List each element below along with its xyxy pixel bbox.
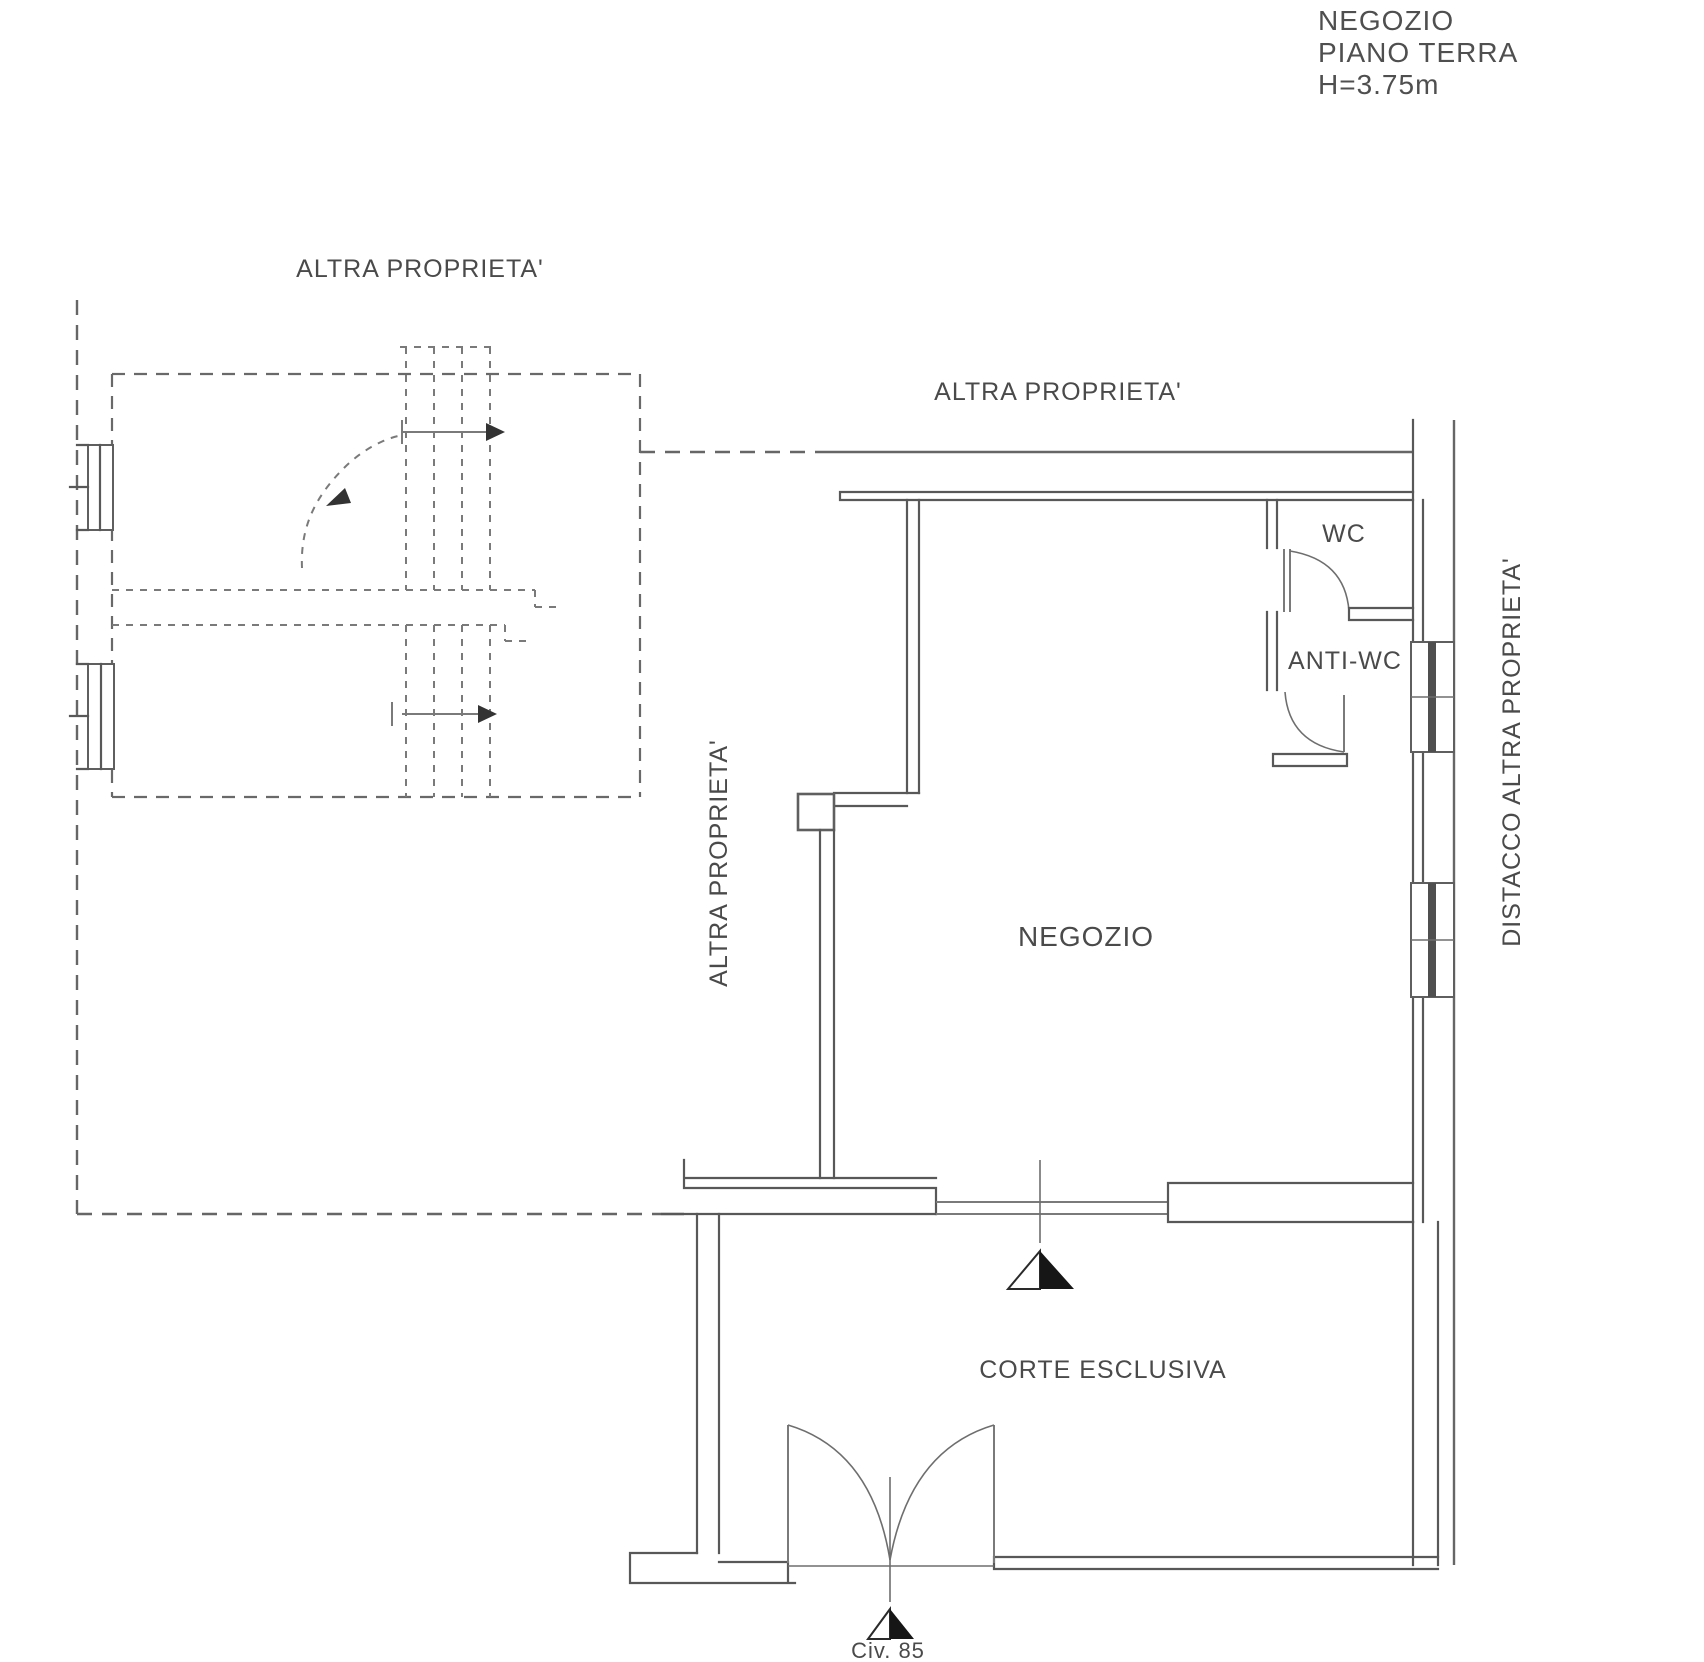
gate-right-swing-arc [890, 1425, 994, 1560]
label-civic-number: Civ. 85 [851, 1638, 925, 1662]
wc-door-leaf [1284, 549, 1290, 612]
wc-left-wall [1267, 500, 1277, 548]
arrow-lower-head-icon [478, 705, 497, 723]
arrow-upper-shaft [402, 420, 486, 444]
shop-entrance-marker [1008, 1160, 1074, 1289]
shop-right-wall [1413, 420, 1423, 1222]
courtyard-gate-double-door [788, 1425, 994, 1602]
arrow-upper-head-icon [486, 423, 505, 441]
wall-pier [798, 794, 834, 830]
courtyard-right-wall [1413, 1222, 1438, 1565]
courtyard-bottom-left-step [630, 1553, 795, 1583]
shop-left-wall-jog [834, 793, 919, 806]
stair-treads-upper-flight [406, 347, 490, 590]
anti-wc-bottom-wall [1273, 754, 1347, 766]
entrance-triangle-filled-icon [1040, 1251, 1074, 1289]
label-negozio: NEGOZIO [1018, 921, 1154, 952]
label-distacco-right-vertical: DISTACCO ALTRA PROPRIETA' [1498, 557, 1526, 947]
shop-top-wall [840, 492, 1413, 500]
shop-bottom-wall-right [1168, 1183, 1413, 1222]
floor-plan-page: NEGOZIO PIANO TERRA H=3.75m ALTRA PROPRI… [0, 0, 1704, 1662]
stair-landing-line-upper [112, 590, 562, 607]
civic-triangle-outline-icon [868, 1609, 890, 1639]
shop-left-wall-upper [907, 500, 919, 793]
title-height: H=3.75m [1318, 69, 1439, 100]
label-corte-esclusiva: CORTE ESCLUSIVA [979, 1356, 1226, 1384]
title-building: NEGOZIO [1318, 5, 1454, 36]
wc-door-swing-arc [1290, 551, 1349, 611]
label-wc: WC [1322, 520, 1366, 548]
text-labels: NEGOZIO PIANO TERRA H=3.75m ALTRA PROPRI… [296, 5, 1526, 1662]
right-wall-window-upper [1411, 642, 1454, 752]
title-floor: PIANO TERRA [1318, 37, 1518, 68]
stair-direction-arrow-curve [326, 488, 351, 506]
entrance-triangle-outline-icon [1008, 1251, 1040, 1289]
wc-door [1284, 549, 1349, 612]
right-wall-window-lower [1411, 883, 1454, 997]
label-anti-wc: ANTI-WC [1288, 647, 1402, 675]
arrow-lower-shaft [392, 702, 478, 726]
anti-wc-left-wall [1267, 612, 1277, 690]
label-altra-proprieta-left-vertical: ALTRA PROPRIETA' [705, 739, 733, 987]
arrow-curve-head-icon [326, 488, 351, 506]
stair-treads-lower-flight [406, 625, 490, 797]
stair-landing-line-lower [112, 625, 530, 641]
shop-bottom-wall-left [684, 1160, 936, 1214]
property-boundary-dashed [77, 300, 1413, 1214]
shop-walls [662, 420, 1454, 1565]
stairwell-other-property [70, 347, 640, 797]
gate-left-swing-arc [788, 1425, 890, 1560]
label-altra-proprieta-top-center: ALTRA PROPRIETA' [934, 378, 1182, 406]
anti-wc-door-swing-arc [1285, 692, 1344, 752]
label-altra-proprieta-top-left: ALTRA PROPRIETA' [296, 255, 544, 283]
floor-plan-drawing: NEGOZIO PIANO TERRA H=3.75m ALTRA PROPRI… [0, 0, 1704, 1662]
stair-direction-arrow-lower [392, 702, 497, 726]
courtyard-bottom-wall-right [994, 1557, 1438, 1569]
civic-triangle-filled-icon [890, 1609, 914, 1639]
shop-left-wall-lower [820, 830, 834, 1178]
courtyard-left-wall [697, 1214, 719, 1553]
wc-bottom-sill [1349, 608, 1413, 620]
anti-wc-door [1285, 692, 1344, 752]
street-entrance-marker [868, 1609, 914, 1639]
shop-entrance-threshold [936, 1202, 1168, 1214]
